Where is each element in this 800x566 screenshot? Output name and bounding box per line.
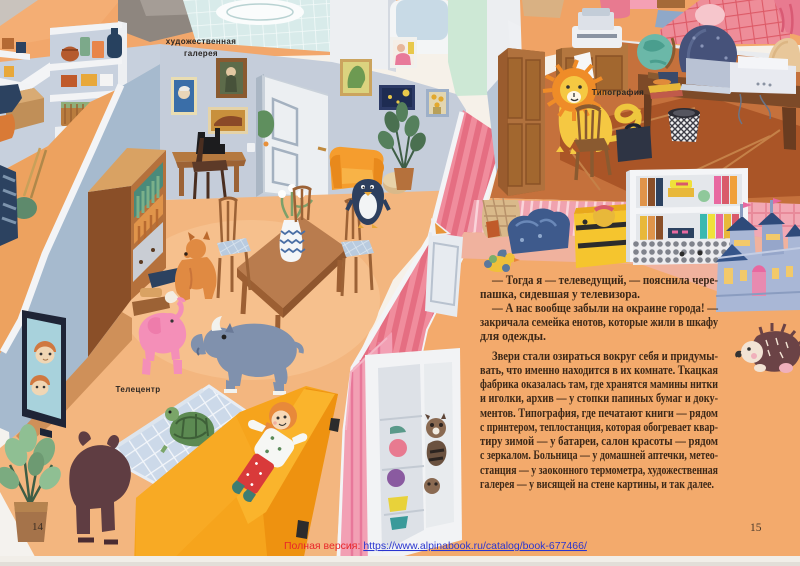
svg-text:для одежды.: для одежды.	[480, 329, 546, 343]
svg-text:Телецентр: Телецентр	[116, 385, 161, 394]
svg-text:станция — у заоконного термоме: станция — у заоконного термометра, худож…	[480, 463, 718, 477]
svg-text:Звери стали озираться вокруг с: Звери стали озираться вокруг себя и прид…	[492, 349, 718, 363]
svg-text:художественная: художественная	[166, 37, 237, 46]
svg-text:ментов. Типография, где печата: ментов. Типография, где печатают книги —…	[480, 406, 718, 420]
svg-text:тиру зимой — у батареи, салон: тиру зимой — у батареи, салон красоты — …	[480, 434, 718, 448]
svg-text:галерея — у висящей на стене к: галерея — у висящей на стене картины, и …	[480, 477, 714, 491]
svg-text:вать, что именно находится в и: вать, что именно находится в их комнате.…	[480, 363, 718, 377]
svg-text:фабрика оказалась там, где хра: фабрика оказалась там, где хранятся мами…	[480, 377, 718, 391]
svg-text:с принтером, теплостанция, кот: с принтером, теплостанция, которая обогр…	[480, 420, 718, 434]
svg-text:Полная версия: https://www.alp: Полная версия: https://www.alpinabook.ru…	[284, 540, 587, 552]
svg-text:закричала семейка енотов, кото: закричала семейка енотов, которые жили в…	[480, 315, 719, 329]
svg-text:15: 15	[750, 522, 762, 534]
svg-text:— А нас вообще забыли на окраи: — А нас вообще забыли на окраине города!…	[491, 301, 718, 315]
svg-text:и иголки, архив — у стопки пап: и иголки, архив — у стопки папиных бумаг…	[480, 391, 718, 405]
svg-text:14: 14	[32, 521, 44, 533]
svg-text:пашка, сидевшая у телевизора.: пашка, сидевшая у телевизора.	[480, 287, 640, 301]
svg-text:— Тогда я — телеведущий, — поя: — Тогда я — телеведущий, — пояснила чере…	[491, 273, 718, 287]
svg-text:с зеркалом. Больница — у домаш: с зеркалом. Больница — у домашней аптечк…	[480, 448, 718, 462]
svg-text:галерея: галерея	[184, 49, 218, 58]
svg-text:Типография: Типография	[592, 88, 644, 97]
